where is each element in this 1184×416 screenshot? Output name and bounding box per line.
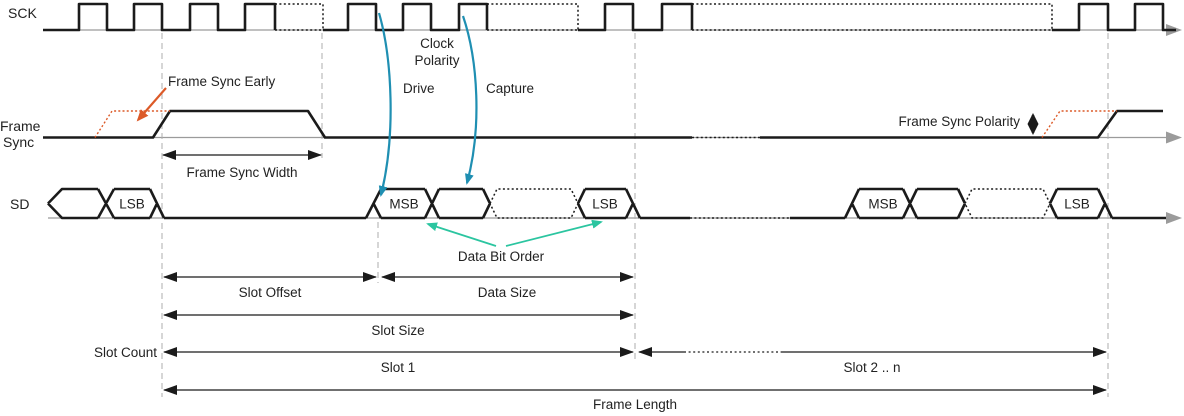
clock-polarity-label-line2: Polarity [414,53,459,68]
annotation-labels: Frame Sync Early Clock Polarity Drive Ca… [168,36,1020,264]
data-bit-order-label: Data Bit Order [458,249,545,264]
sck-label: SCK [8,5,37,21]
sync-label: Sync [3,134,34,150]
sck-optional-clocks-dotted [275,4,1052,30]
sd-label: SD [10,196,29,212]
frame-length-label: Frame Length [593,397,677,412]
left-lsb-cell-label: LSB [119,197,145,212]
frame-label: Frame [0,118,41,134]
sck-waveform [43,4,1176,30]
clock-polarity-label-line1: Clock [420,36,454,51]
cell-labels: LSB MSB LSB MSB LSB [119,197,1090,212]
row-labels: SCK Frame Sync SD [0,5,41,212]
capture-edge-arrow [463,16,476,183]
slot-2-n-label: Slot 2 .. n [843,360,900,375]
slot1-lsb-cell-label: LSB [592,197,618,212]
frame-sync-polarity-label: Frame Sync Polarity [898,114,1020,129]
dimension-labels: Slot Offset Data Size Slot Size Slot Cou… [94,285,901,412]
frame-sync-early-label: Frame Sync Early [168,74,276,89]
data-bit-order-arrow-lsb [506,222,601,246]
frame-sync-width-label: Frame Sync Width [186,165,297,180]
data-size-label: Data Size [478,285,537,300]
slotn-msb-cell-label: MSB [868,197,897,212]
slot-count-label: Slot Count [94,345,157,360]
slotn-lsb-cell-label: LSB [1064,197,1090,212]
drive-edge-arrow [379,13,391,195]
gridlines [162,33,1108,397]
data-bit-order-arrow-msb [428,224,496,246]
slot-size-label: Slot Size [371,323,424,338]
drive-label: Drive [403,81,435,96]
slot1-msb-cell-label: MSB [389,197,418,212]
capture-label: Capture [486,81,534,96]
slot-offset-label: Slot Offset [239,285,302,300]
timing-diagram-canvas: SCK Frame Sync SD LSB MSB LSB MSB LSB Fr… [0,0,1184,416]
slot-1-label: Slot 1 [381,360,416,375]
sd-hidden-bits-dotted [490,189,1050,218]
sai-frame-timing-diagram: SCK Frame Sync SD LSB MSB LSB MSB LSB Fr… [0,0,1184,416]
sck-signal [43,4,1176,30]
